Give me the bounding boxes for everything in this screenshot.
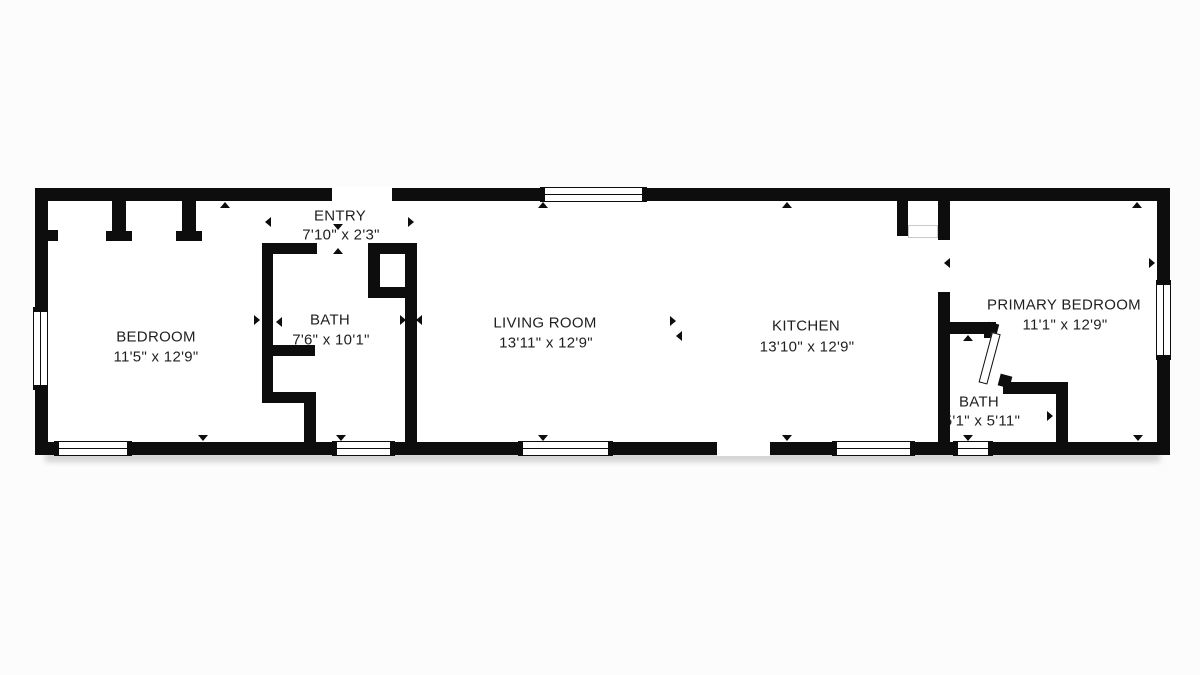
front-entry-door-opening [332, 187, 392, 202]
floor-plan: BEDROOM11'5" x 12'9"ENTRY7'10" x 2'3"BAT… [0, 0, 1200, 675]
wall-bedroom-closet-divider-1 [112, 201, 126, 232]
room-dimensions: 11'1" x 12'9" [1022, 317, 1107, 334]
direction-marker [676, 331, 682, 341]
direction-marker [254, 315, 260, 325]
room-label: BEDROOM [116, 329, 196, 346]
direction-marker [1132, 202, 1142, 208]
direction-marker [408, 217, 414, 227]
direction-marker [538, 202, 548, 208]
direction-marker [276, 317, 282, 327]
rear-door-opening [717, 441, 770, 456]
window [832, 441, 915, 456]
direction-marker [782, 202, 792, 208]
window [953, 441, 993, 456]
direction-marker [333, 224, 343, 230]
direction-marker [336, 435, 346, 441]
wall-bath-living-wall [405, 243, 417, 442]
wall-bedroom-closet-foot-1 [106, 231, 132, 241]
direction-marker [538, 435, 548, 441]
room-label: ENTRY [314, 208, 366, 225]
window [540, 187, 647, 202]
room-label: KITCHEN [772, 318, 840, 335]
wall-bedroom-closet-foot-2 [176, 231, 202, 241]
wall-kitchen-primary-wall-upper [938, 201, 950, 240]
wall-bedroom-closet-divider-2 [182, 201, 196, 232]
direction-marker [782, 435, 792, 441]
window [33, 307, 48, 390]
direction-marker [400, 315, 406, 325]
room-dimensions: 13'11" x 12'9" [499, 335, 593, 352]
direction-marker [265, 217, 271, 227]
direction-marker [416, 315, 422, 325]
direction-marker [963, 435, 973, 441]
direction-marker [963, 335, 973, 341]
room-label: BATH [959, 394, 999, 411]
direction-marker [198, 435, 208, 441]
window [1156, 280, 1171, 360]
direction-marker [1047, 411, 1053, 421]
direction-marker [944, 258, 950, 268]
wall-bath2-right-wall [1056, 382, 1068, 442]
room-dimensions: 11'5" x 12'9" [113, 349, 198, 366]
wall-kitchen-closet-wall [897, 201, 908, 236]
room-dimensions: 5'1" x 5'11" [944, 413, 1020, 430]
direction-marker [220, 202, 230, 208]
window [54, 441, 132, 456]
direction-marker [670, 316, 676, 326]
wall-kitchen-primary-wall-lower [938, 292, 950, 442]
wall-bath-jog-wall [304, 392, 316, 442]
room-label: PRIMARY BEDROOM [987, 297, 1141, 314]
direction-marker [1149, 258, 1155, 268]
room-label: LIVING ROOM [493, 315, 596, 332]
direction-marker [333, 248, 343, 254]
window [332, 441, 395, 456]
room-dimensions: 13'10" x 12'9" [760, 339, 855, 356]
window [518, 441, 613, 456]
wall-bedroom-bath-wall [262, 243, 273, 403]
room-label: BATH [310, 312, 350, 329]
closet-doors [908, 225, 938, 238]
wall-bath-niche-top [262, 345, 315, 356]
wall-bedroom-closet-left-stub [48, 230, 58, 241]
direction-marker [1133, 435, 1143, 441]
